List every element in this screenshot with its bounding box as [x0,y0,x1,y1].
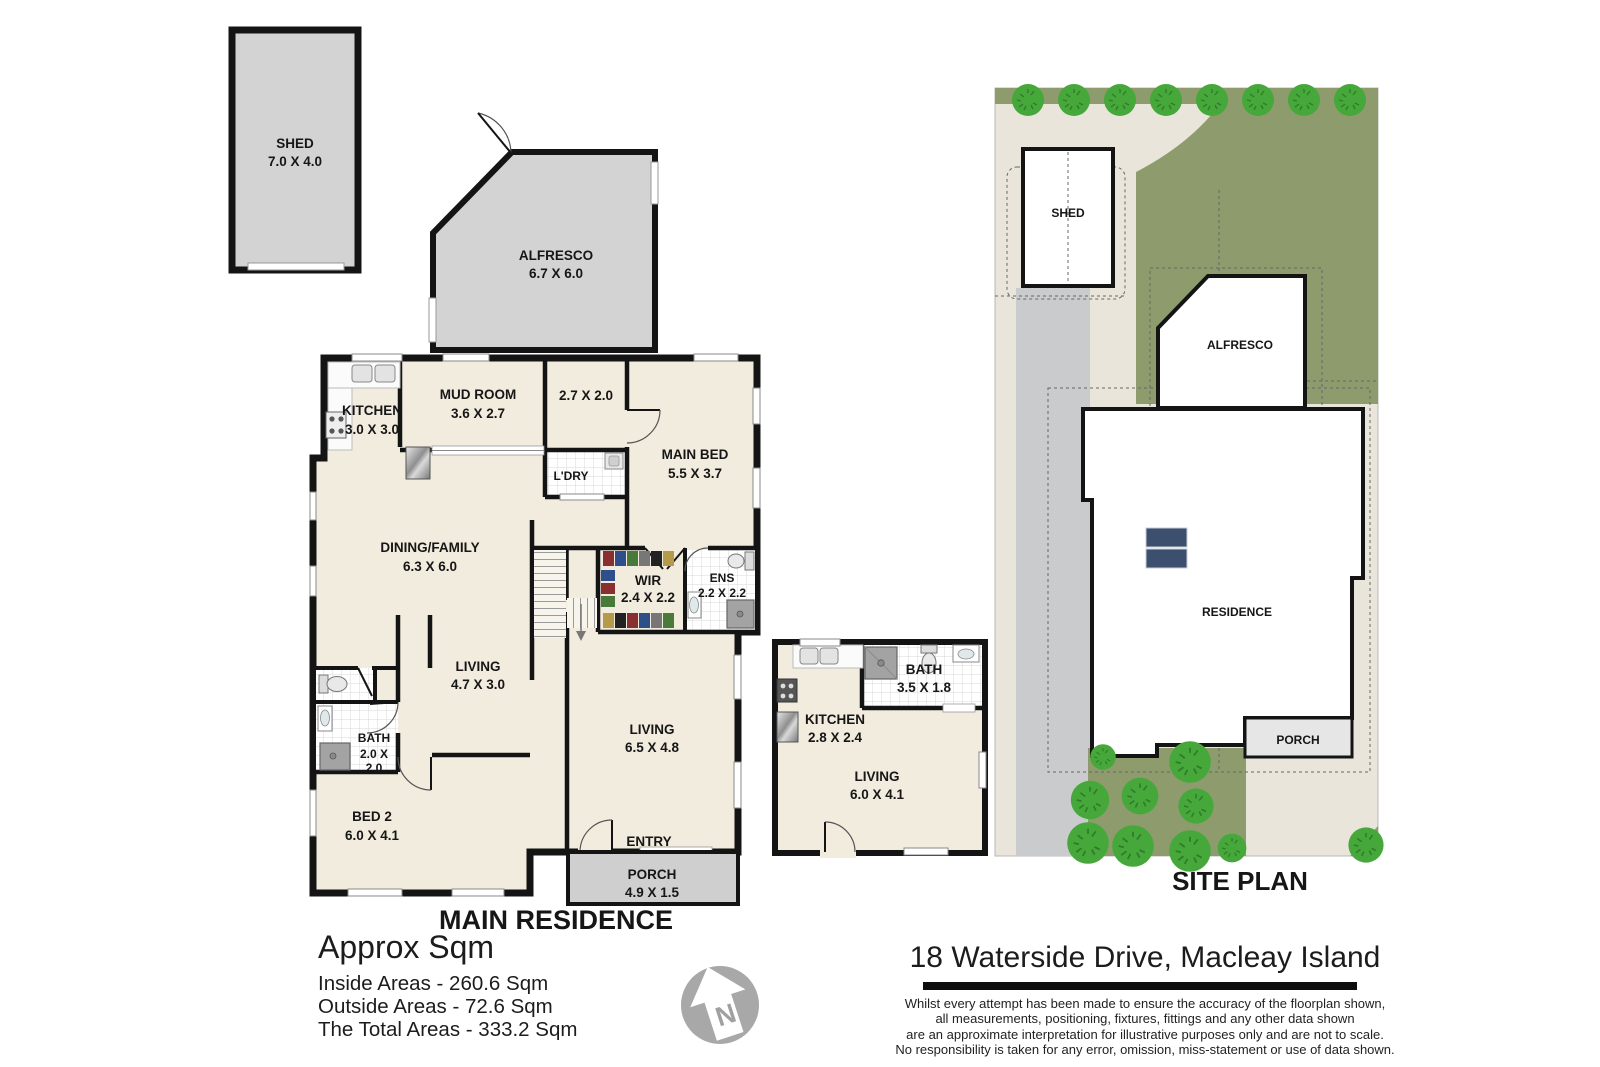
site-alfresco-label: ALFRESCO [1207,338,1273,352]
divider-bar [923,982,1357,990]
site-plan-title: SITE PLAN [1172,866,1308,896]
area-summary-heading: Approx Sqm [318,930,648,964]
shed-dims: 7.0 X 4.0 [268,154,322,169]
bath-label: BATH [358,731,390,745]
disclaimer-line: No responsibility is taken for any error… [895,1042,1395,1057]
disclaimer-line: all measurements, positioning, fixtures,… [895,1011,1395,1026]
main-porch: PORCH 4.9 X 1.5 [568,852,738,904]
property-address: 18 Waterside Drive, Macleay Island [895,941,1395,975]
kitchen-dims: 3.0 X 3.0 [345,422,399,437]
plan-shed: SHED 7.0 X 4.0 [232,30,358,270]
floorplan-drawing: SHED 7.0 X 4.0 ALFRESCO 6.7 X 6.0 [0,0,1600,1067]
plan-granny-flat: BATH 3.5 X 1.8 KITCHEN 2.8 X 2.4 LIVING … [775,639,986,858]
gf-kitchen-label: KITCHEN [805,712,865,727]
ens-label: ENS [710,571,735,585]
bed2-label: BED 2 [352,809,392,824]
sink [375,365,395,382]
north-compass: N [680,958,759,1045]
plan-alfresco: ALFRESCO 6.7 X 6.0 [429,113,658,350]
total-areas-line: The Total Areas - 333.2 Sqm [318,1018,648,1041]
gf-living-dims: 6.0 X 4.1 [850,787,905,802]
alfresco-window [651,162,658,204]
site-porch-label: PORCH [1276,733,1319,747]
disclaimer-line: are an approximate interpretation for il… [895,1027,1395,1042]
sink [820,648,838,664]
mud-room-label: MUD ROOM [440,387,517,402]
stove [777,679,797,702]
alfresco-window [429,298,436,342]
shed-door-opening [248,263,344,270]
disclaimer: Whilst every attempt has been made to en… [895,996,1395,1057]
area-summary: Approx Sqm Inside Areas - 260.6 Sqm Outs… [318,930,648,1041]
plan-main-residence: PORCH 4.9 X 1.5 KITCHEN 3.0 X 3.0 MUD RO… [310,354,760,935]
sink [352,365,372,382]
toilet [921,645,937,653]
inside-areas-line: Inside Areas - 260.6 Sqm [318,972,648,995]
main-bed-label: MAIN BED [662,447,729,462]
porch-label: PORCH [628,867,677,882]
dining-family-label: DINING/FAMILY [380,540,479,555]
bath-dims-2: 2.0 [366,761,383,775]
gf-bath-label: BATH [906,662,943,677]
sink [800,648,818,664]
site-shed: SHED [1023,149,1113,286]
fridge [406,447,430,479]
laundry-label: L'DRY [553,469,588,483]
porch-dims: 4.9 X 1.5 [625,885,680,900]
wir-label: WIR [635,573,661,588]
gf-living-label: LIVING [854,769,899,784]
shed-label: SHED [276,136,314,151]
site-shed-label: SHED [1051,206,1085,220]
wir-dims: 2.4 X 2.2 [621,590,675,605]
site-residence: RESIDENCE PORCH [1083,409,1363,757]
toilet [745,552,754,570]
ens-dims: 2.2 X 2.2 [698,586,746,600]
outside-areas-line: Outside Areas - 72.6 Sqm [318,995,648,1018]
site-concrete-strip [1016,288,1090,856]
gf-kitchen-dims: 2.8 X 2.4 [808,730,863,745]
site-plan: SHED ALFRESCO RESIDENCE PORCH [995,84,1384,896]
site-verge-strip [995,88,1378,104]
living-small-dims: 4.7 X 3.0 [451,677,505,692]
living-large-label: LIVING [629,722,674,737]
living-small-label: LIVING [455,659,500,674]
dining-family-dims: 6.3 X 6.0 [403,559,457,574]
mud-room-dims: 3.6 X 2.7 [451,406,505,421]
living-large-dims: 6.5 X 4.8 [625,740,680,755]
kitchen-label: KITCHEN [342,403,402,418]
gf-bath-dims: 3.5 X 1.8 [897,680,952,695]
main-bed-dims: 5.5 X 3.7 [668,466,722,481]
alfresco-dims: 6.7 X 6.0 [529,266,583,281]
floorplan-sheet: SHED 7.0 X 4.0 ALFRESCO 6.7 X 6.0 [0,0,1600,1067]
site-residence-label: RESIDENCE [1202,605,1272,619]
site-panel [1146,549,1187,568]
store-room-dims: 2.7 X 2.0 [559,388,613,403]
disclaimer-line: Whilst every attempt has been made to en… [895,996,1395,1011]
bed2-dims: 6.0 X 4.1 [345,828,400,843]
gf-bath-door [943,704,975,712]
site-panel [1146,528,1187,547]
bath-dims-1: 2.0 X [360,747,388,761]
alfresco-label: ALFRESCO [519,248,593,263]
fridge [777,712,798,742]
entry-label: ENTRY [626,834,671,849]
